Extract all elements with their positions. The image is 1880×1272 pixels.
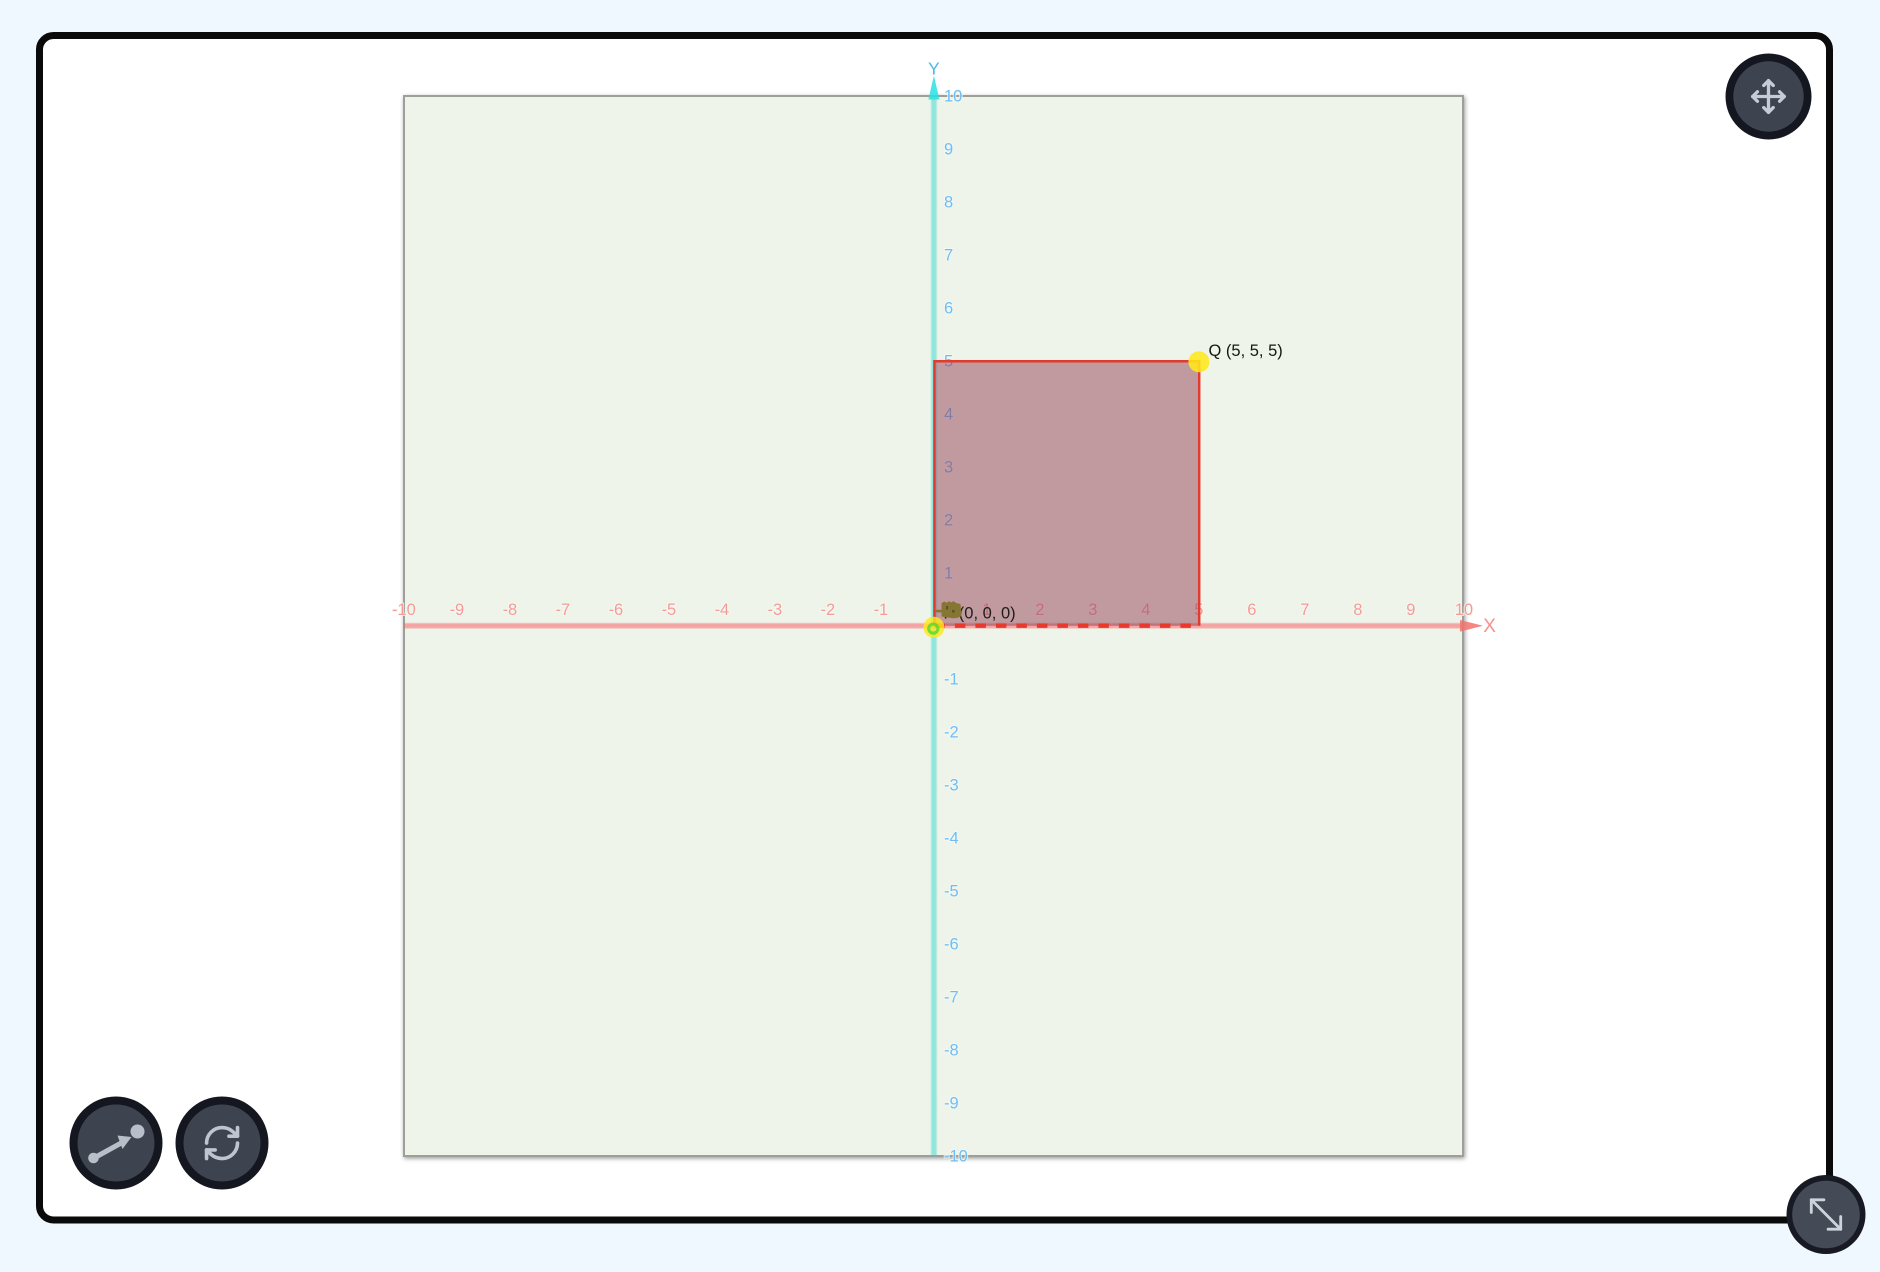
svg-text:-1: -1 [944,670,959,688]
svg-text:-7: -7 [556,601,571,619]
svg-text:-4: -4 [715,601,730,619]
svg-text:7: 7 [1300,601,1309,619]
svg-text:-10: -10 [944,1147,968,1165]
svg-text:Y: Y [928,59,940,79]
svg-text:-10: -10 [392,601,416,619]
svg-text:-2: -2 [821,601,836,619]
svg-text:-8: -8 [503,601,518,619]
svg-text:10: 10 [1455,601,1473,619]
svg-text:-2: -2 [944,723,959,741]
svg-text:-9: -9 [450,601,465,619]
svg-text:-5: -5 [944,882,959,900]
svg-text:8: 8 [944,193,953,211]
svg-text:9: 9 [1406,601,1415,619]
svg-text:-6: -6 [944,935,959,953]
svg-text:7: 7 [944,246,953,264]
svg-text:6: 6 [1247,601,1256,619]
svg-text:Q (5, 5, 5): Q (5, 5, 5) [1209,342,1283,360]
svg-text:-7: -7 [944,988,959,1006]
svg-text:9: 9 [944,140,953,158]
svg-text:-5: -5 [662,601,677,619]
svg-text:-3: -3 [768,601,783,619]
svg-text:X: X [1483,616,1496,637]
svg-text:6: 6 [944,299,953,317]
svg-text:10: 10 [944,87,962,105]
svg-text:8: 8 [1353,601,1362,619]
svg-text:-1: -1 [874,601,889,619]
svg-text:-9: -9 [944,1094,959,1112]
svg-text:-6: -6 [609,601,624,619]
svg-text:-4: -4 [944,829,959,847]
svg-text:-8: -8 [944,1041,959,1059]
svg-text:-3: -3 [944,776,959,794]
